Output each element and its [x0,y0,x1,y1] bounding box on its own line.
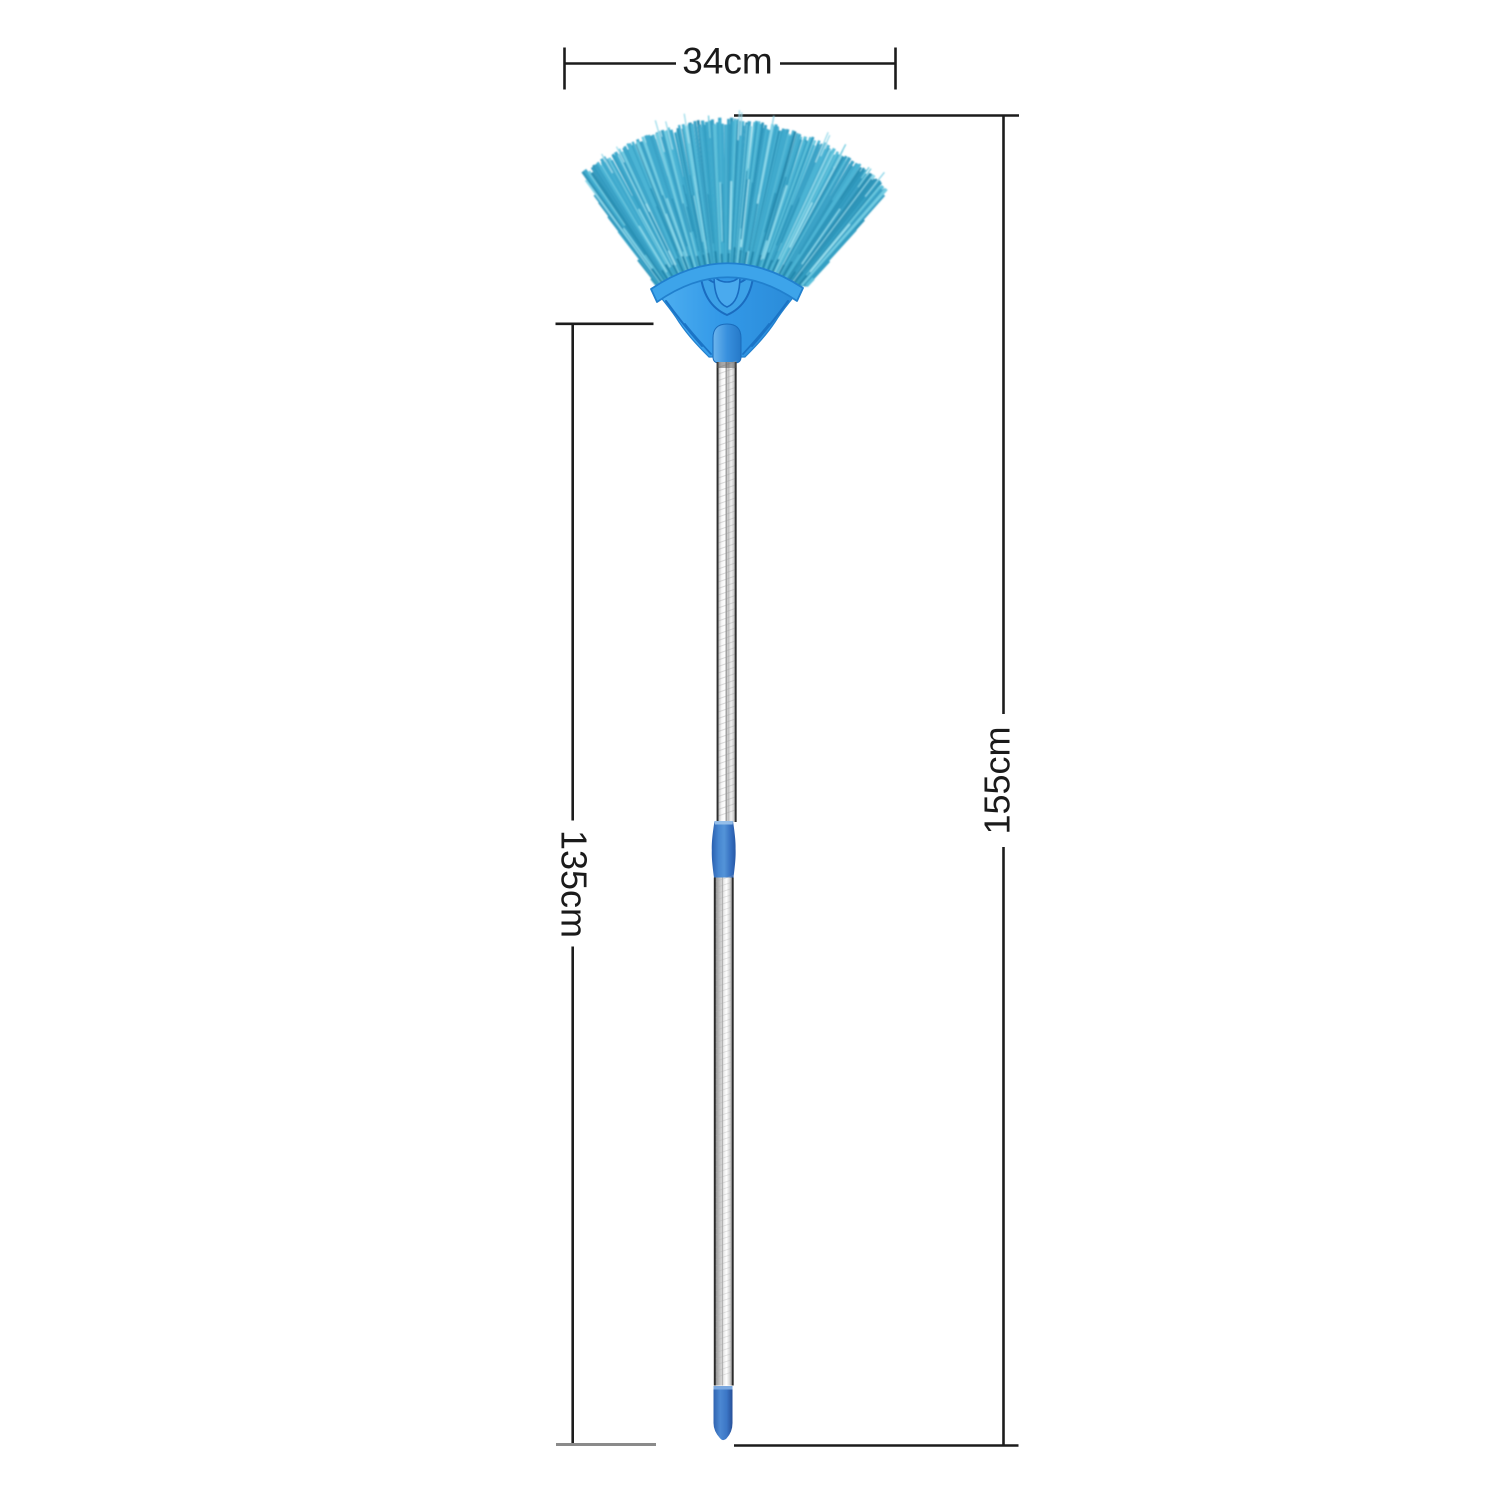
svg-text:34cm: 34cm [682,41,772,82]
svg-text:155cm: 155cm [977,726,1018,834]
svg-text:135cm: 135cm [554,830,595,938]
